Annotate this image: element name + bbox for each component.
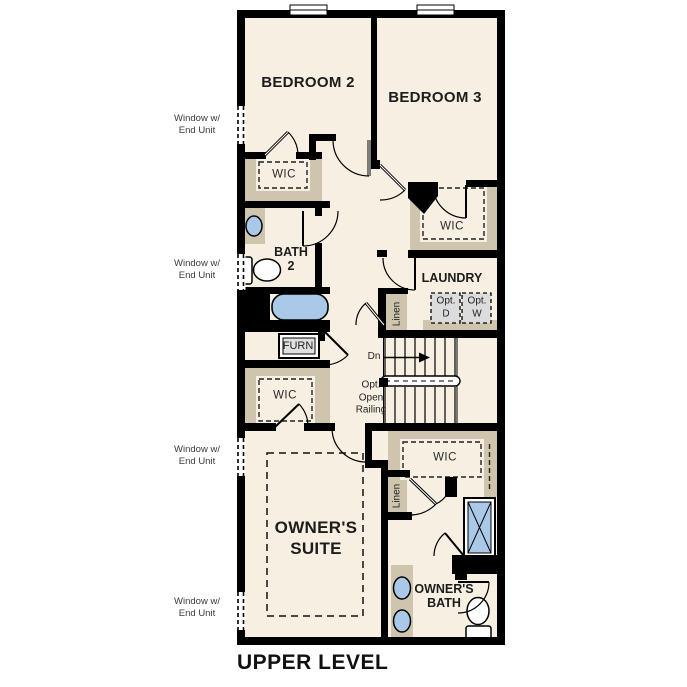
window-note-1-line2: End Unit [174, 125, 220, 137]
window-note-2-line1: Window w/ [174, 258, 220, 270]
label-stairs-down: Dn [368, 351, 381, 364]
label-owners-suite-line2: SUITE [275, 538, 358, 559]
label-furnace: FURN [283, 340, 314, 353]
label-wic-bedroom3: WIC [440, 221, 464, 234]
window-note-3-line2: End Unit [174, 456, 220, 468]
label-owners-bath: OWNER'S BATH [414, 582, 473, 610]
label-owners-suite-line1: OWNER'S [275, 517, 358, 538]
label-owners-suite: OWNER'S SUITE [275, 517, 358, 559]
label-opt-washer-line1: Opt. [468, 296, 487, 309]
window-note-4-line2: End Unit [174, 608, 220, 620]
label-owners-bath-line1: OWNER'S [414, 582, 473, 596]
window-note-1-line1: Window w/ [174, 113, 220, 125]
label-linen-upper: Linen [392, 302, 403, 326]
shower [464, 498, 495, 557]
label-opt-open-railing: Opt. Open Railing [356, 379, 387, 417]
label-wic-owners-right: WIC [433, 452, 457, 465]
label-bath2-line1: BATH [274, 245, 308, 259]
label-bath2-line2: 2 [274, 259, 308, 273]
floor-plan-drawing [0, 0, 687, 687]
label-opt-dryer-line2: D [437, 308, 456, 321]
window-note-4-line1: Window w/ [174, 596, 220, 608]
bath2-sink [246, 216, 262, 236]
label-railing-line1: Opt. [356, 379, 387, 392]
label-bedroom2: BEDROOM 2 [261, 75, 355, 92]
window-note-4: Window w/ End Unit [174, 596, 220, 620]
label-railing-line3: Railing [356, 404, 387, 417]
label-linen-lower: Linen [392, 484, 403, 508]
label-opt-washer-line2: W [468, 308, 487, 321]
label-opt-washer: Opt. W [468, 296, 487, 321]
window-note-3-line1: Window w/ [174, 444, 220, 456]
window-note-3: Window w/ End Unit [174, 444, 220, 468]
label-wic-owners-left: WIC [273, 390, 297, 403]
label-wic-bedroom2: WIC [272, 169, 296, 182]
floor-plan-page: BEDROOM 2 BEDROOM 3 WIC BATH 2 LAUNDRY O… [0, 0, 687, 687]
window-note-2: Window w/ End Unit [174, 258, 220, 282]
label-laundry: LAUNDRY [422, 271, 483, 285]
label-opt-dryer: Opt. D [437, 296, 456, 321]
bathtub [272, 294, 328, 320]
label-owners-bath-line2: BATH [414, 596, 473, 610]
label-opt-dryer-line1: Opt. [437, 296, 456, 309]
label-bedroom3: BEDROOM 3 [388, 90, 482, 107]
label-railing-line2: Open [356, 392, 387, 405]
window-note-2-line2: End Unit [174, 270, 220, 282]
label-bath2: BATH 2 [274, 245, 308, 273]
window-note-1: Window w/ End Unit [174, 113, 220, 137]
plan-title: UPPER LEVEL [237, 651, 388, 675]
stair-landing-rail [379, 376, 460, 387]
